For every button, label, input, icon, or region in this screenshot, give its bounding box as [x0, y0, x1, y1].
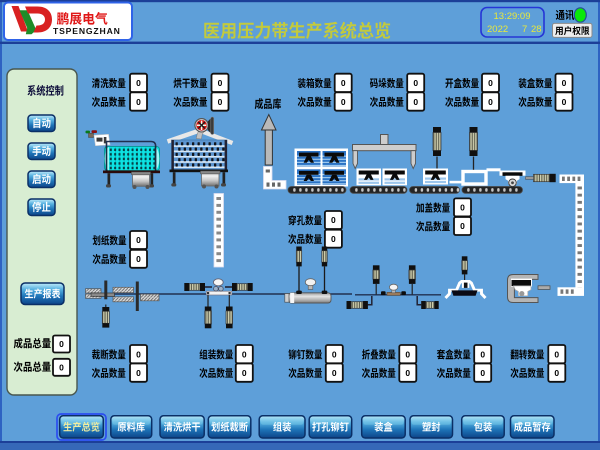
svg-text:0: 0 — [242, 349, 247, 359]
svg-text:0: 0 — [488, 97, 493, 107]
svg-text:0: 0 — [136, 78, 141, 88]
svg-text:0: 0 — [405, 349, 410, 359]
svg-text:0: 0 — [460, 203, 465, 213]
svg-text:0: 0 — [341, 97, 346, 107]
svg-text:0: 0 — [413, 97, 418, 107]
svg-text:13:29:09: 13:29:09 — [494, 11, 531, 22]
svg-text:7: 7 — [522, 24, 527, 35]
svg-text:0: 0 — [218, 78, 223, 88]
svg-text:0: 0 — [413, 78, 418, 88]
svg-text:0: 0 — [136, 349, 141, 359]
svg-text:0: 0 — [562, 78, 567, 88]
svg-text:TSPENGZHAN: TSPENGZHAN — [53, 26, 121, 36]
svg-text:0: 0 — [480, 349, 485, 359]
svg-text:0: 0 — [480, 368, 485, 378]
svg-text:0: 0 — [488, 78, 493, 88]
svg-text:0: 0 — [554, 368, 559, 378]
svg-text:0: 0 — [562, 97, 567, 107]
svg-text:0: 0 — [242, 368, 247, 378]
svg-text:0: 0 — [332, 349, 337, 359]
svg-text:28: 28 — [531, 24, 542, 35]
svg-text:0: 0 — [136, 235, 141, 245]
svg-text:0: 0 — [136, 368, 141, 378]
svg-text:0: 0 — [136, 254, 141, 264]
svg-text:0: 0 — [332, 368, 337, 378]
svg-text:0: 0 — [218, 97, 223, 107]
svg-text:0: 0 — [59, 339, 64, 349]
svg-text:0: 0 — [331, 215, 336, 225]
svg-text:0: 0 — [331, 234, 336, 244]
svg-text:0: 0 — [554, 349, 559, 359]
svg-text:0: 0 — [460, 221, 465, 231]
svg-text:2022: 2022 — [487, 24, 508, 35]
svg-text:0: 0 — [136, 97, 141, 107]
svg-text:0: 0 — [59, 363, 64, 373]
svg-text:0: 0 — [405, 368, 410, 378]
svg-text:0: 0 — [341, 78, 346, 88]
